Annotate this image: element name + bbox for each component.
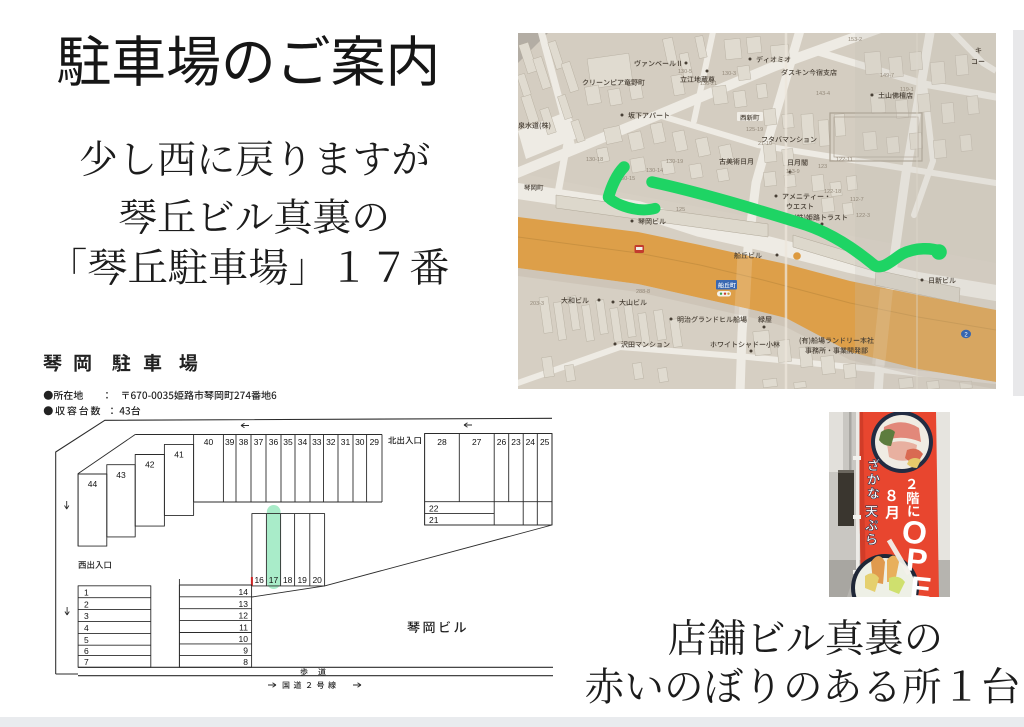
svg-text:42: 42 xyxy=(145,460,155,470)
svg-text:24: 24 xyxy=(526,437,536,447)
svg-text:130-3: 130-3 xyxy=(722,71,736,77)
svg-text:122-3: 122-3 xyxy=(856,213,870,219)
svg-text:10: 10 xyxy=(239,634,249,644)
svg-text:33: 33 xyxy=(312,437,322,447)
svg-text:19: 19 xyxy=(297,575,307,585)
svg-text:122-18: 122-18 xyxy=(824,189,841,195)
svg-text:22: 22 xyxy=(429,504,439,514)
svg-text:13: 13 xyxy=(239,599,249,609)
svg-text:44: 44 xyxy=(88,479,98,489)
svg-text:123: 123 xyxy=(818,164,827,170)
svg-text:17: 17 xyxy=(269,575,279,585)
svg-text:149-7: 149-7 xyxy=(880,73,894,79)
svg-text:288-8: 288-8 xyxy=(636,289,650,295)
svg-text:E: E xyxy=(908,569,933,597)
svg-text:14: 14 xyxy=(239,587,249,597)
svg-text:25: 25 xyxy=(540,437,550,447)
svg-text:2: 2 xyxy=(84,599,89,609)
svg-text:143-4: 143-4 xyxy=(816,91,830,97)
svg-text:3: 3 xyxy=(84,611,89,621)
svg-text:18: 18 xyxy=(283,575,293,585)
svg-text:8: 8 xyxy=(243,657,248,667)
svg-text:125-19: 125-19 xyxy=(746,127,763,133)
svg-text:119-1: 119-1 xyxy=(900,87,914,93)
svg-text:40: 40 xyxy=(204,437,214,447)
svg-text:130-19: 130-19 xyxy=(666,159,683,165)
svg-text:20: 20 xyxy=(312,575,322,585)
svg-text:4: 4 xyxy=(84,623,89,633)
svg-text:31: 31 xyxy=(341,437,351,447)
svg-text:130-18: 130-18 xyxy=(586,157,603,163)
svg-text:130-14: 130-14 xyxy=(646,168,663,174)
svg-text:36: 36 xyxy=(269,437,279,447)
svg-text:41: 41 xyxy=(174,450,184,460)
svg-text:21: 21 xyxy=(429,515,439,525)
svg-text:9: 9 xyxy=(243,645,248,655)
svg-text:27: 27 xyxy=(472,437,482,447)
svg-text:23: 23 xyxy=(511,437,521,447)
svg-text:29: 29 xyxy=(370,437,380,447)
svg-text:34: 34 xyxy=(298,437,308,447)
svg-text:7: 7 xyxy=(84,657,89,667)
svg-text:30: 30 xyxy=(355,437,365,447)
svg-text:35: 35 xyxy=(283,437,293,447)
svg-text:125: 125 xyxy=(676,207,685,213)
svg-text:39: 39 xyxy=(225,437,235,447)
svg-text:130-5: 130-5 xyxy=(678,69,692,75)
svg-text:130-21: 130-21 xyxy=(700,81,717,87)
svg-text:12: 12 xyxy=(239,611,249,621)
svg-text:38: 38 xyxy=(239,437,249,447)
svg-text:5: 5 xyxy=(84,635,89,645)
svg-text:6: 6 xyxy=(84,646,89,656)
svg-text:11: 11 xyxy=(239,622,248,632)
svg-text:21-10: 21-10 xyxy=(758,141,772,147)
svg-text:26: 26 xyxy=(497,437,507,447)
svg-text:32: 32 xyxy=(326,437,336,447)
svg-text:16: 16 xyxy=(254,575,264,585)
svg-text:28: 28 xyxy=(437,437,447,447)
svg-text:37: 37 xyxy=(254,437,264,447)
svg-text:1: 1 xyxy=(84,588,89,598)
svg-text:112-7: 112-7 xyxy=(850,197,864,203)
svg-text:122-11: 122-11 xyxy=(836,157,853,163)
svg-text:43: 43 xyxy=(116,470,126,480)
svg-text:153-2: 153-2 xyxy=(848,37,862,43)
svg-text:113-9: 113-9 xyxy=(786,169,800,175)
svg-text:203-3: 203-3 xyxy=(530,301,544,307)
